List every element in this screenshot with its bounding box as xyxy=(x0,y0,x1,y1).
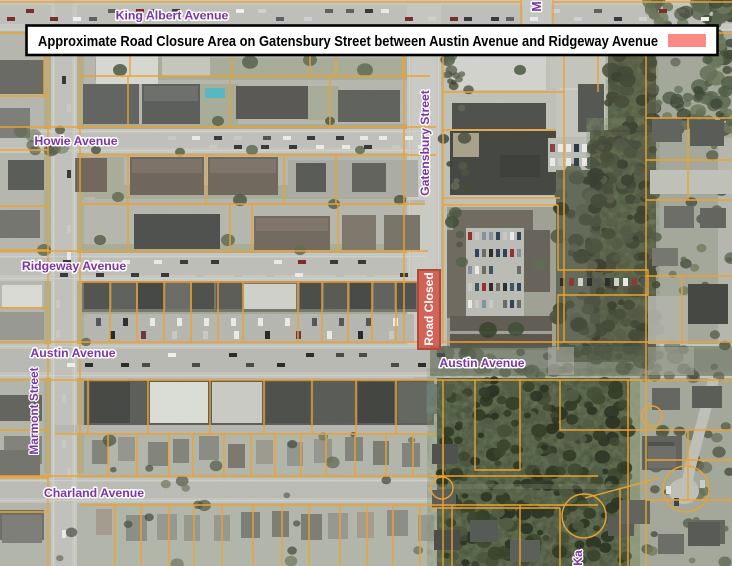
svg-text:Marmont Street: Marmont Street xyxy=(27,367,41,454)
svg-text:Ridgeway Avenue: Ridgeway Avenue xyxy=(22,259,126,273)
svg-text:Austin Avenue: Austin Avenue xyxy=(30,346,115,360)
svg-text:Gatensbury Street: Gatensbury Street xyxy=(418,90,432,196)
svg-text:M: M xyxy=(530,1,544,12)
svg-text:Austin Avenue: Austin Avenue xyxy=(439,356,524,370)
svg-text:King Albert Avenue: King Albert Avenue xyxy=(116,9,229,23)
svg-text:Ka: Ka xyxy=(571,550,585,566)
svg-text:Howie Avenue: Howie Avenue xyxy=(34,134,117,148)
svg-text:Charland Avenue: Charland Avenue xyxy=(44,486,144,500)
svg-text:Road Closed: Road Closed xyxy=(422,272,436,345)
svg-text:Approximate Road Closure Area: Approximate Road Closure Area on Gatensb… xyxy=(38,33,658,50)
